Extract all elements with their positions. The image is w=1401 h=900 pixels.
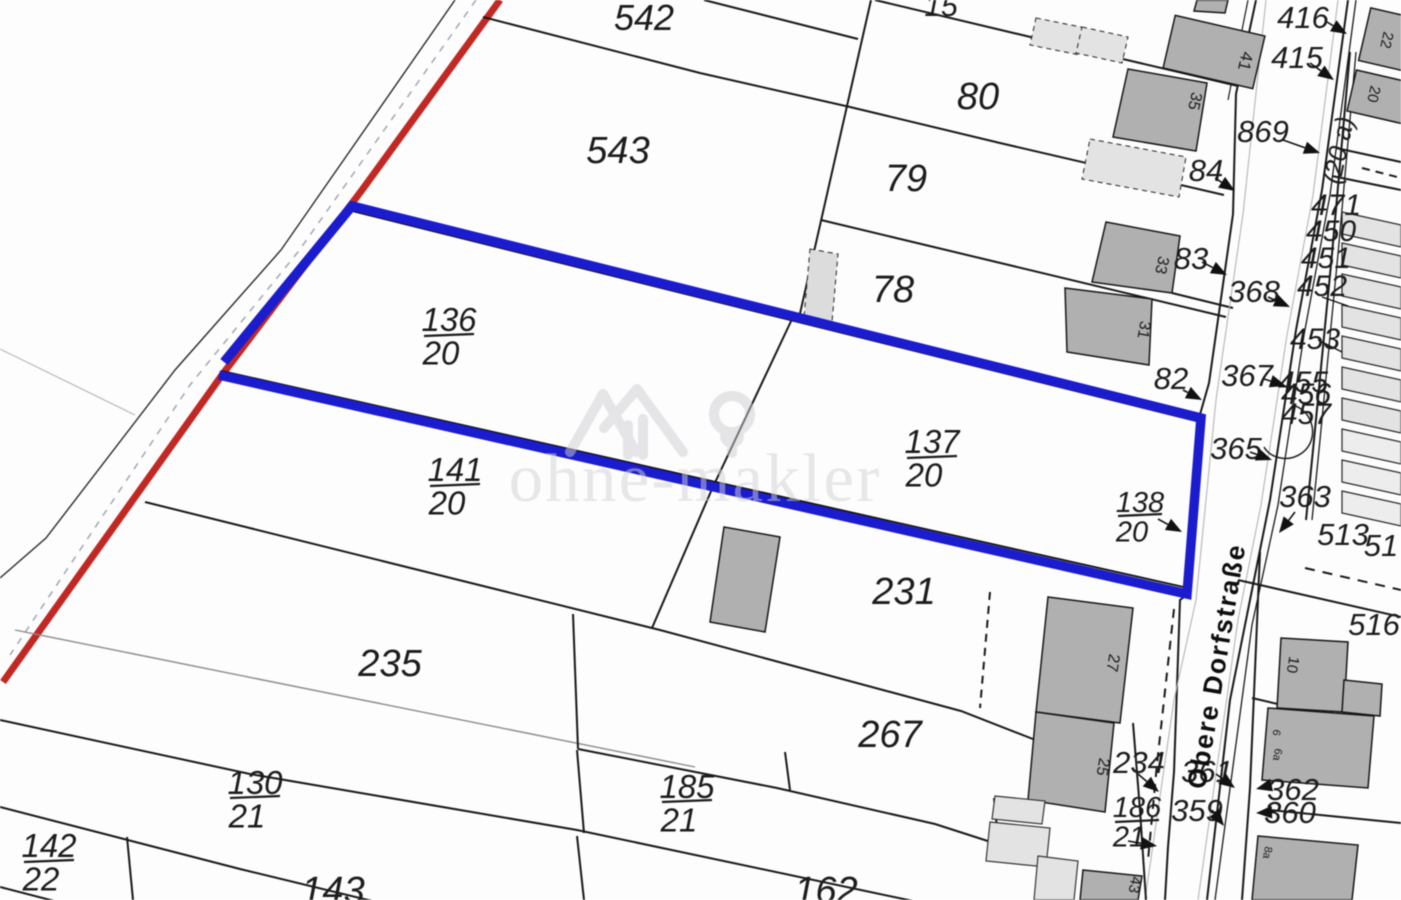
svg-text:516: 516 [1348,607,1400,642]
svg-text:22: 22 [22,861,60,898]
svg-text:80: 80 [957,76,999,118]
svg-text:20: 20 [422,335,460,372]
svg-text:457: 457 [1281,398,1332,431]
svg-text:137: 137 [904,423,961,460]
svg-text:363: 363 [1279,479,1331,514]
svg-text:78: 78 [872,269,914,311]
svg-text:365: 365 [1210,431,1262,466]
svg-text:452: 452 [1297,270,1347,303]
svg-text:79: 79 [885,158,927,200]
svg-text:869: 869 [1237,114,1289,149]
svg-text:141: 141 [427,451,482,488]
svg-text:21: 21 [228,798,266,835]
svg-text:84: 84 [1189,153,1223,188]
svg-text:415: 415 [1271,40,1323,75]
svg-text:235: 235 [357,643,422,685]
svg-text:142: 142 [21,827,76,864]
svg-text:543: 543 [586,130,649,172]
svg-text:83: 83 [1174,241,1208,276]
svg-text:20: 20 [1115,517,1148,549]
svg-text:43: 43 [1125,875,1145,894]
svg-text:513: 513 [1317,517,1369,552]
svg-text:10: 10 [1283,655,1303,674]
svg-text:ohne-makler: ohne-makler [509,440,882,516]
svg-text:136: 136 [421,301,477,338]
svg-text:31: 31 [1133,320,1153,341]
svg-text:359: 359 [1171,793,1223,828]
svg-text:20: 20 [428,485,466,522]
svg-text:21: 21 [1112,822,1145,854]
svg-text:162: 162 [794,870,857,900]
svg-text:27: 27 [1102,653,1122,674]
svg-text:143: 143 [301,870,364,900]
svg-text:542: 542 [614,0,674,38]
svg-text:416: 416 [1277,0,1329,35]
svg-text:231: 231 [871,571,935,613]
svg-text:15: 15 [924,0,958,23]
svg-text:25: 25 [1092,757,1112,778]
svg-text:367: 367 [1221,358,1274,393]
svg-text:20: 20 [905,457,943,494]
svg-text:453: 453 [1290,323,1340,356]
svg-text:267: 267 [857,714,923,756]
svg-text:51: 51 [1364,528,1398,563]
svg-text:21: 21 [660,802,698,839]
svg-text:368: 368 [1228,274,1280,309]
